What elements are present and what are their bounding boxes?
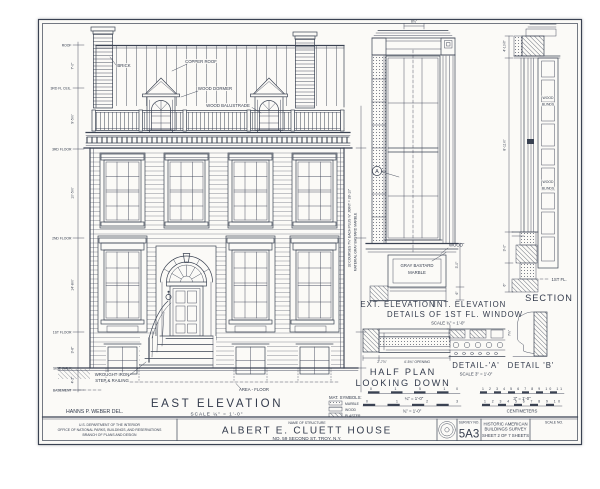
- detail-window-scale: SCALE ¾" = 1'-0": [431, 321, 465, 326]
- scale-bar-ticks: 1 2 3 4 5 6 7 8 9 10 11: [482, 387, 562, 391]
- marble-label-2: MARBLE: [408, 270, 426, 275]
- story-dim: 3'-6": [71, 346, 75, 354]
- head-dim: 8¾": [411, 20, 418, 24]
- dormer-left: [143, 78, 180, 133]
- agency-box: U.S. DEPARTMENT OF THE INTERIOR OFFICE O…: [58, 423, 162, 437]
- survey-no-label: SURVEY NO.: [459, 421, 480, 425]
- entrance-door: [156, 246, 216, 340]
- level-label-1st-floor: 1ST FLOOR: [53, 331, 72, 335]
- agency-line-2: OFFICE OF NATIONAL PARKS, BUILDINGS, AND…: [58, 428, 162, 432]
- detail-a-marker-letter: A: [375, 169, 379, 175]
- window: [164, 153, 209, 228]
- wood-blinds-label-1b: BLINDS: [542, 103, 555, 107]
- wood-blinds-box: WOOD BLINDS WOOD BLINDS: [538, 58, 558, 268]
- interior-casing: [443, 55, 455, 243]
- section-dim-4: 6": [503, 283, 507, 287]
- scale-bar-three-quarter-inch: 0 1 2 3 ¾" = 1'-0": [363, 400, 461, 414]
- legend-wood-label: WOOD: [345, 408, 356, 412]
- plan-dim-2: 4'-5¾" OPENING: [404, 360, 431, 364]
- main-cornice: [84, 133, 352, 149]
- habs-sheet-count: SHEET 2 OF 7 SHEETS: [482, 433, 529, 438]
- legend-marble-label: MARBLE: [345, 402, 360, 406]
- copper-roof-label: COPPER ROOF: [185, 59, 217, 64]
- detail-a-title: DETAIL-'A': [452, 361, 500, 370]
- left-dimension-column: ROOF 3RD FL CEIL. 3RD FLOOR 2ND FLOOR 1S…: [51, 42, 84, 393]
- detail-a-scale: SCALE 3" = 1'-0": [460, 372, 493, 377]
- scale-bar-label: CENTIMETERS: [507, 409, 538, 414]
- survey-no-value: 5A3: [459, 429, 479, 441]
- roof: [96, 46, 344, 108]
- story-dim: 9'-5⅞": [71, 113, 75, 123]
- window: [226, 236, 275, 332]
- east-elevation-drawing: ROOF 3RD FL CEIL. 3RD FLOOR 2ND FLOOR 1S…: [51, 27, 366, 417]
- window: [232, 344, 269, 382]
- right-chimney: [293, 32, 317, 108]
- east-elevation-title: EAST ELEVATION: [151, 398, 283, 410]
- scale-bar-ticks: 0 1 2 3: [366, 400, 458, 404]
- wood-blinds-label-2b: BLINDS: [542, 187, 555, 191]
- roof-balustrade: [92, 110, 344, 131]
- agency-line-1: U.S. DEPARTMENT OF THE INTERIOR: [79, 423, 141, 427]
- story-dim: 4'-2": [71, 376, 75, 384]
- section-dim-1: 4'-10½": [503, 39, 507, 51]
- title-block: HANNS P. WEBER DEL. U.S. DEPARTMENT OF T…: [43, 409, 578, 441]
- brick-label: BRICK: [117, 63, 130, 68]
- detail-b-drawing: 7⅞" DETAIL 'B': [508, 312, 555, 370]
- level-label-2nd-floor: 2ND FLOOR: [52, 237, 72, 241]
- survey-number-box: SURVEY NO. 5A3: [459, 421, 480, 441]
- level-label-roof: ROOF: [62, 44, 72, 48]
- habs-line-2: BUILDINGS SURVEY: [485, 427, 527, 432]
- scale-bar-label: ¼" = 1'-0": [405, 396, 424, 401]
- section-dim-2: 8'-11⅞": [503, 139, 507, 151]
- story-dim: 10'-5⅞": [71, 186, 75, 198]
- jamb-marble-blocks: [372, 56, 386, 243]
- scale-bar-ticks: 1 2 3 4 5 6 7 8 9 10: [484, 400, 560, 404]
- area-floor-label: AREA - FLOOR: [239, 387, 269, 392]
- material-note: MATERIAL GRAY BASTARD MARBLE: [354, 212, 358, 271]
- wood-label: WOOD: [449, 243, 463, 248]
- wood-blinds-label-1a: WOOD: [543, 96, 554, 100]
- base-dim: 6": [455, 291, 459, 295]
- wood-dormer-label: WOOD DORMER: [198, 86, 232, 91]
- window: [296, 344, 333, 382]
- sill-and-apron: GRAY BASTARD MARBLE WOOD: [366, 240, 463, 287]
- scale-bar-centimeters: 1 2 3 4 5 6 7 8 9 10 CENTIMETERS: [482, 400, 562, 414]
- ext-elevation-caption: EXT. ELEVATION: [360, 300, 435, 309]
- detail-a-drawing: DETAIL-'A' SCALE 3" = 1'-0": [447, 329, 505, 377]
- wood-balustrade-label: WOOD BALUSTRADE: [206, 103, 250, 108]
- window: [228, 153, 273, 228]
- half-plan-caption-1: HALF PLAN: [370, 367, 436, 377]
- dormer-right: [251, 78, 288, 133]
- legend-title: MAT. SYMBOLS:: [329, 395, 362, 400]
- second-story-windows: [100, 153, 337, 228]
- habs-seal-icon: [439, 422, 456, 439]
- detail-b-dim: 7⅞": [508, 329, 512, 336]
- east-elevation-scale: SCALE ¼" = 1'-0": [191, 412, 244, 417]
- habs-box: HISTORIC AMERICAN BUILDINGS SURVEY SHEET…: [482, 422, 529, 439]
- left-chimney: [91, 27, 115, 108]
- graphic-scale-bars: 0 1 5 10 ¼" = 1'-0" 0 1 2 3 ¾" = 1'-0" 1…: [363, 387, 564, 414]
- section-dim-3: 3'-0": [503, 244, 507, 252]
- structure-address: NO. 59 SECOND ST. TROY, N.Y.: [272, 436, 341, 441]
- structure-name-box: NAME OF STRUCTURE ALBERT E. CLUETT HOUSE…: [222, 421, 392, 441]
- scale-bar-label: ¾" = 1'-0": [403, 409, 422, 414]
- marble-label-1: GRAY BASTARD: [401, 263, 434, 268]
- first-story-windows: [98, 236, 339, 332]
- level-label-3rd-ceil: 3RD FL CEIL.: [51, 87, 72, 91]
- name-of-structure-label: NAME OF STRUCTURE: [288, 421, 326, 425]
- level-label-3rd-floor: 3RD FLOOR: [52, 148, 72, 152]
- first-floor-window-detail: 8¾": [360, 20, 523, 326]
- scale-no-box: SCALE NO.: [545, 421, 563, 425]
- habs-drawing-sheet-page: ROOF 3RD FL CEIL. 3RD FLOOR 2ND FLOOR 1S…: [0, 0, 600, 489]
- detail-window-caption: DETAILS OF 1ST FL. WINDOW: [387, 310, 523, 319]
- half-plan-drawing: 2'-7⅞" 4'-5¾" OPENING HALF PLAN LOOKING …: [355, 325, 450, 388]
- section-first-floor-label: 1ST FL.: [552, 277, 567, 282]
- window-section-drawing: WOOD BLINDS WOOD BLINDS 4'-10½: [503, 24, 573, 303]
- wall-below-sill: [370, 286, 446, 301]
- scale-no-label: SCALE NO.: [545, 421, 563, 425]
- section-title: SECTION: [525, 293, 573, 303]
- material-symbols-legend: MAT. SYMBOLS: MARBLE WOOD PLASTER: [329, 395, 362, 418]
- level-label-basement: BASEMENT: [53, 389, 72, 393]
- delineator-credit: HANNS P. WEBER DEL.: [66, 409, 123, 415]
- detail-sash: [386, 50, 440, 252]
- basement-windows: [104, 344, 333, 382]
- wrought-iron-label-1: WROUGHT IRON: [95, 372, 130, 377]
- window: [100, 153, 145, 228]
- detail-b-title: DETAIL 'B': [508, 361, 555, 370]
- window: [98, 236, 147, 332]
- wrought-iron-label-2: STEP & RAILING: [95, 378, 129, 383]
- level-label-sidewalk: SIDE WALK: [53, 367, 72, 371]
- wood-blinds-label-2a: WOOD: [543, 180, 554, 184]
- plan-dim-1: 2'-7⅞": [377, 360, 387, 364]
- window: [290, 236, 339, 332]
- agency-line-3: BRANCH OF PLANS AND DESIGN: [83, 433, 137, 437]
- courses-note: 32 COURSES 7⅜" EACH PLUS ⅜" JOINT = 28'-…: [348, 188, 352, 267]
- story-dim: 7'-0": [71, 62, 75, 70]
- story-dim: 14'-8⅞": [71, 278, 75, 290]
- apron-dim: 3'-0": [455, 261, 459, 269]
- window: [292, 153, 337, 228]
- int-elevation-caption: INT. ELEVATION: [434, 300, 507, 309]
